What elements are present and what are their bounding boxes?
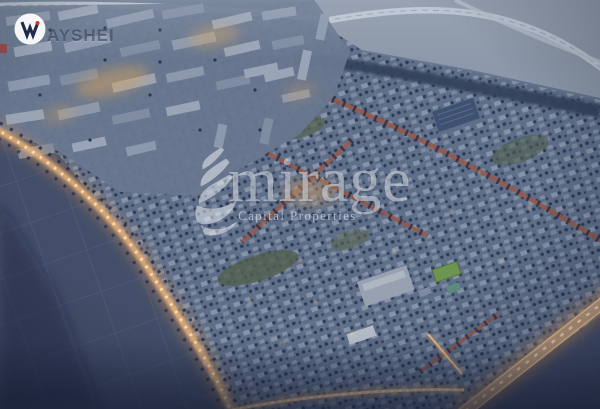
render-scene: [0, 0, 600, 409]
atmosphere-overlays: [0, 0, 600, 409]
aerial-masterplan-render: AYSHEI mirage Capital Properties: [0, 0, 600, 409]
